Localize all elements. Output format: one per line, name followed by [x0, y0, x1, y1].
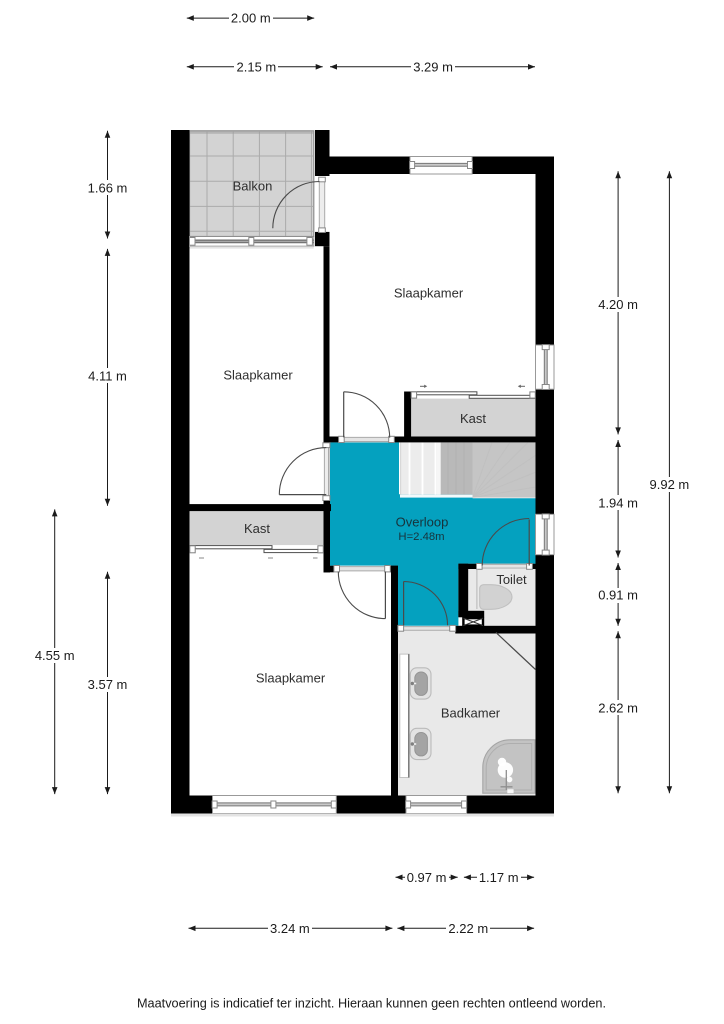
- svg-text:Kast: Kast: [460, 411, 486, 426]
- svg-text:H=2.48m: H=2.48m: [398, 531, 444, 543]
- svg-text:3.57 m: 3.57 m: [88, 677, 128, 692]
- svg-text:Kast: Kast: [244, 521, 270, 536]
- svg-text:Slaapkamer: Slaapkamer: [394, 286, 464, 301]
- svg-text:1.94 m: 1.94 m: [598, 495, 638, 510]
- svg-text:4.11 m: 4.11 m: [88, 369, 127, 384]
- svg-text:Badkamer: Badkamer: [441, 706, 501, 721]
- svg-text:2.15 m: 2.15 m: [237, 59, 277, 74]
- svg-text:2.00 m: 2.00 m: [231, 11, 271, 26]
- svg-text:Toilet: Toilet: [496, 572, 527, 587]
- svg-text:Slaapkamer: Slaapkamer: [223, 368, 293, 383]
- svg-text:Balkon: Balkon: [233, 179, 273, 194]
- svg-text:0.91 m: 0.91 m: [598, 588, 638, 603]
- svg-text:1.66 m: 1.66 m: [88, 180, 128, 195]
- svg-text:3.29 m: 3.29 m: [413, 59, 453, 74]
- svg-text:Slaapkamer: Slaapkamer: [256, 671, 326, 686]
- svg-text:9.92 m: 9.92 m: [650, 477, 690, 492]
- svg-text:Maatvoering is indicatief ter: Maatvoering is indicatief ter inzicht. H…: [137, 997, 606, 1011]
- svg-text:Overloop: Overloop: [396, 515, 449, 530]
- svg-text:3.24 m: 3.24 m: [270, 921, 310, 936]
- svg-text:4.55 m: 4.55 m: [35, 648, 75, 663]
- svg-text:1.17 m: 1.17 m: [479, 870, 519, 885]
- svg-text:2.62 m: 2.62 m: [598, 701, 638, 716]
- svg-text:4.20 m: 4.20 m: [598, 297, 638, 312]
- svg-text:2.22 m: 2.22 m: [448, 921, 488, 936]
- svg-text:0.97 m: 0.97 m: [407, 870, 447, 885]
